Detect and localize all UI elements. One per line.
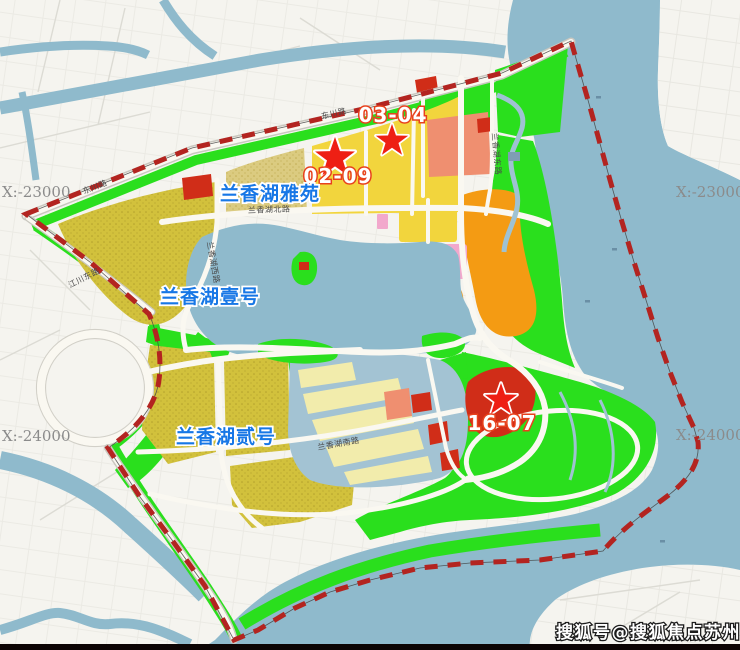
project-label-yayuan: 兰香湖雅苑: [220, 182, 320, 205]
road-label-lanxianghu-north: 兰香湖北路: [248, 204, 291, 215]
project-label-erhao: 兰香湖贰号: [176, 425, 276, 448]
watermark-text: 搜狐号@搜狐焦点苏州站: [556, 622, 740, 643]
building-block: [508, 152, 520, 161]
planning-map-screenshot: 02-09 03-04 16-07 兰香湖雅苑 兰香湖壹号 兰香湖贰号 X:-2…: [0, 0, 740, 650]
plot-label-03-04: 03-04: [359, 103, 428, 127]
planning-map-canvas[interactable]: 02-09 03-04 16-07 兰香湖雅苑 兰香湖壹号 兰香湖贰号 X:-2…: [0, 0, 740, 650]
coord-label-bottom-left: X:-24000: [2, 427, 71, 445]
coord-label-top-left: X:-23000: [2, 183, 71, 201]
plot-label-16-07: 16-07: [468, 411, 537, 435]
coord-label-bottom-right: X:-24000: [676, 426, 740, 444]
bottom-bar: [0, 644, 740, 650]
coord-label-top-right: X:-23000: [676, 183, 740, 201]
project-label-yihao: 兰香湖壹号: [160, 285, 260, 308]
